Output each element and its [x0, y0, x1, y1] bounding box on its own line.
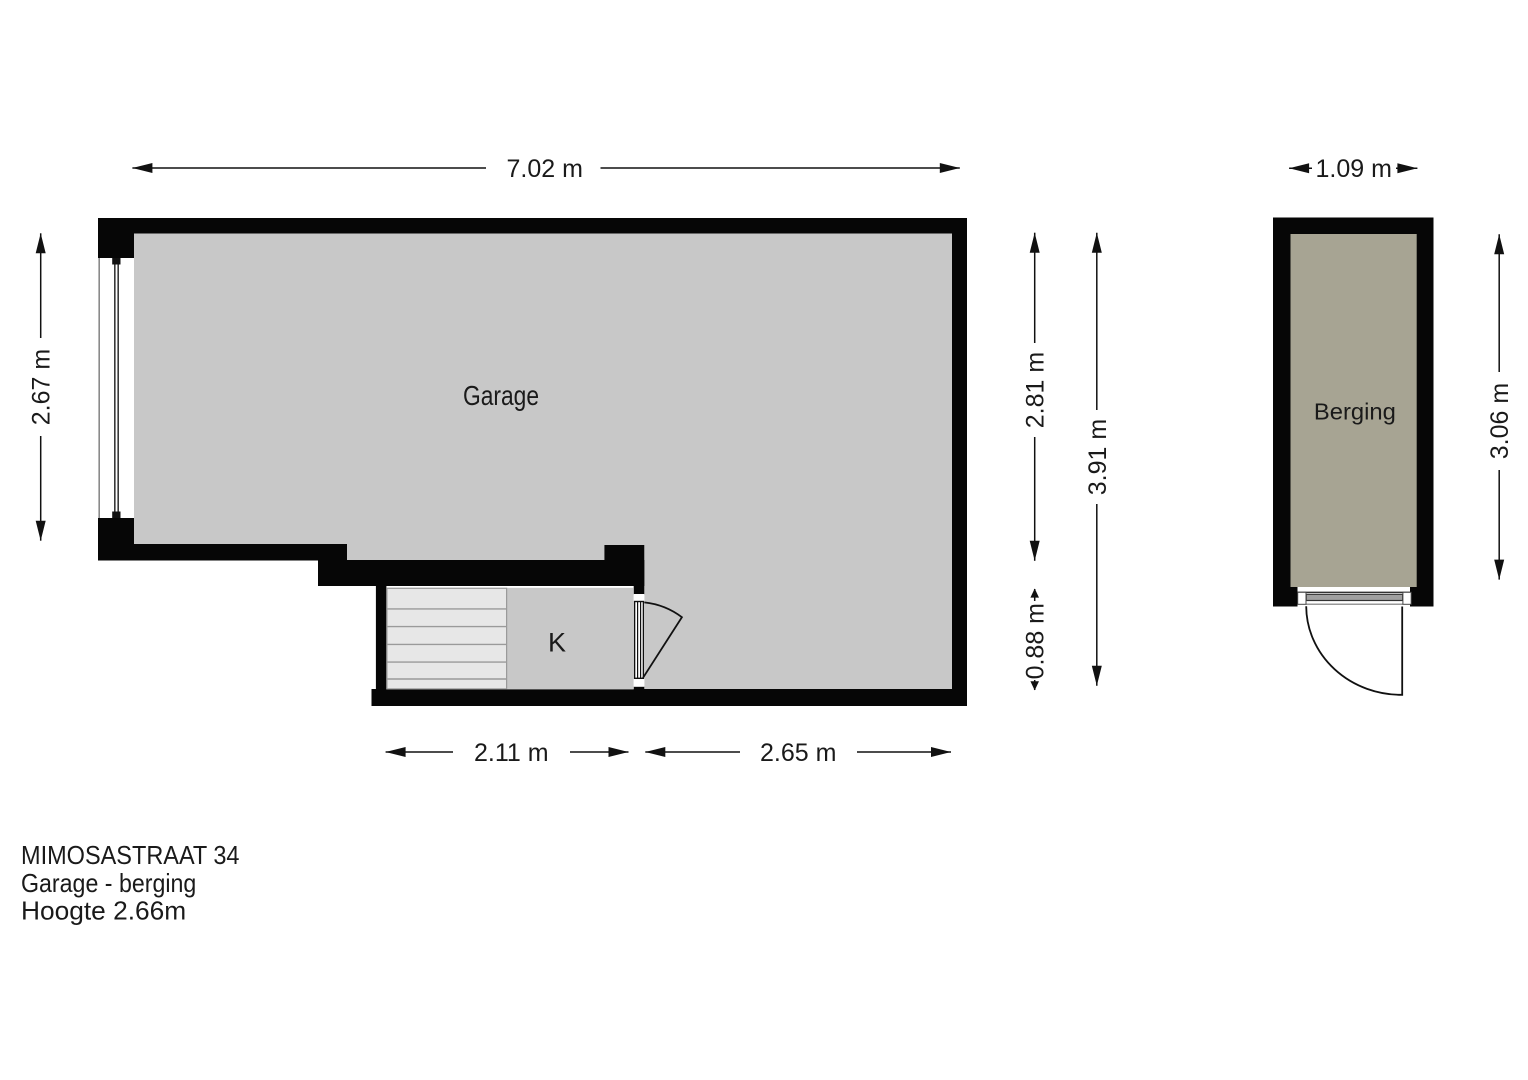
svg-text:3.06 m: 3.06 m: [1486, 383, 1514, 459]
svg-text:1.09 m: 1.09 m: [1315, 155, 1391, 183]
svg-text:K: K: [548, 628, 566, 658]
svg-text:Berging: Berging: [1314, 399, 1396, 425]
svg-text:2.65 m: 2.65 m: [760, 739, 836, 767]
svg-text:3.91 m: 3.91 m: [1084, 419, 1112, 495]
svg-text:Garage - berging: Garage - berging: [21, 868, 196, 898]
svg-text:0.88 m: 0.88 m: [1022, 603, 1050, 679]
svg-text:2.11 m: 2.11 m: [474, 739, 549, 767]
svg-text:7.02 m: 7.02 m: [506, 155, 582, 183]
svg-text:Garage: Garage: [463, 380, 539, 411]
svg-text:Hoogte 2.66m: Hoogte 2.66m: [21, 896, 186, 926]
svg-text:MIMOSASTRAAT 34: MIMOSASTRAAT 34: [21, 840, 240, 870]
svg-text:2.81 m: 2.81 m: [1022, 352, 1050, 428]
svg-text:2.67 m: 2.67 m: [28, 349, 56, 425]
